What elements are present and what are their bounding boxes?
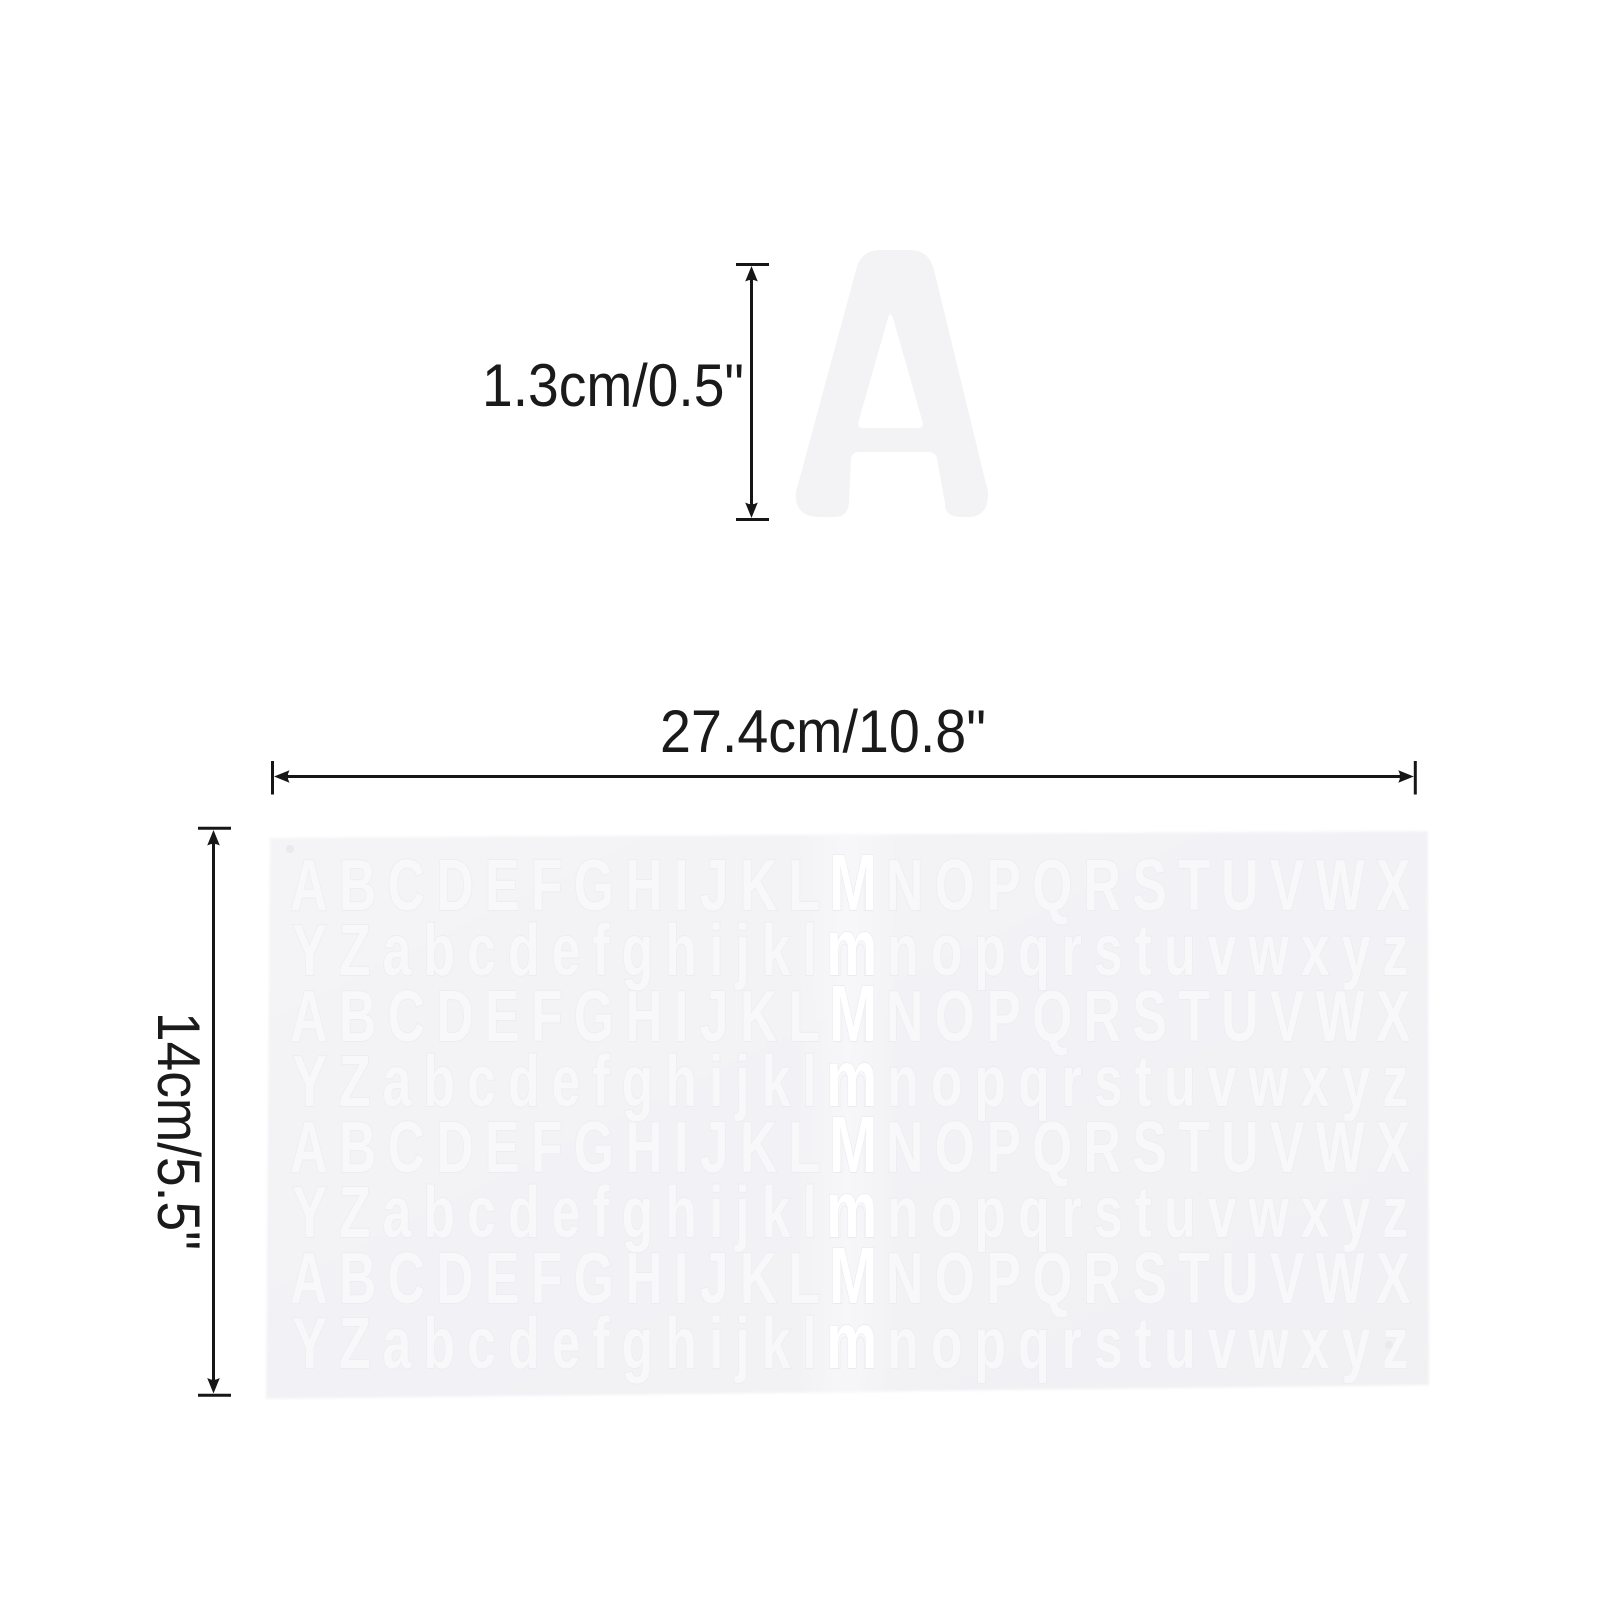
svg-text:m: m	[826, 1296, 877, 1386]
svg-text:27.4cm/10.8": 27.4cm/10.8"	[660, 698, 986, 765]
svg-text:1.3cm/0.5": 1.3cm/0.5"	[482, 352, 744, 419]
svg-text:14cm/5.5": 14cm/5.5"	[145, 1012, 212, 1250]
